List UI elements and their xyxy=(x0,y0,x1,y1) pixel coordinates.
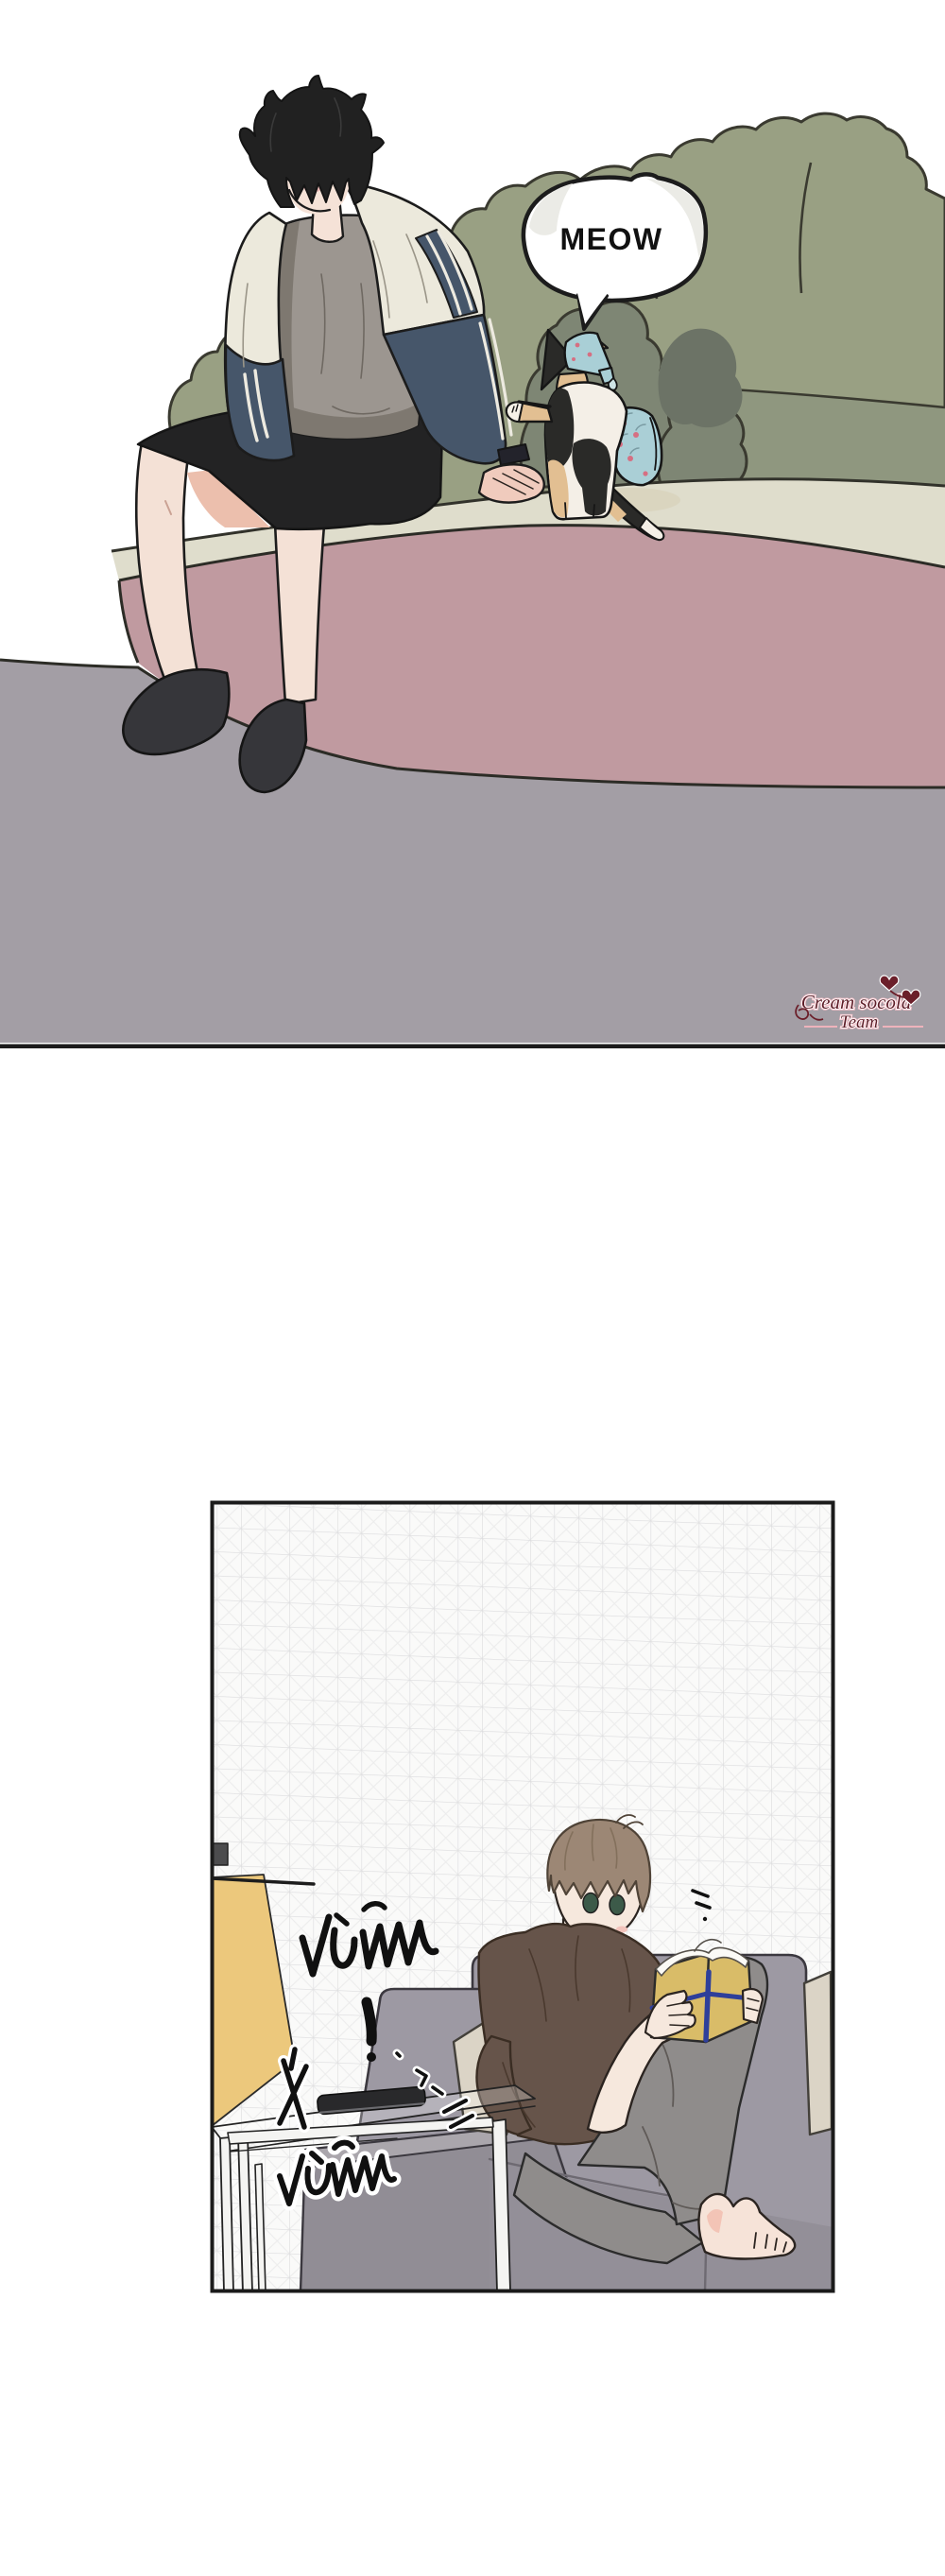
svg-text:Team: Team xyxy=(840,1012,878,1032)
svg-text:MEOW: MEOW xyxy=(559,222,662,256)
